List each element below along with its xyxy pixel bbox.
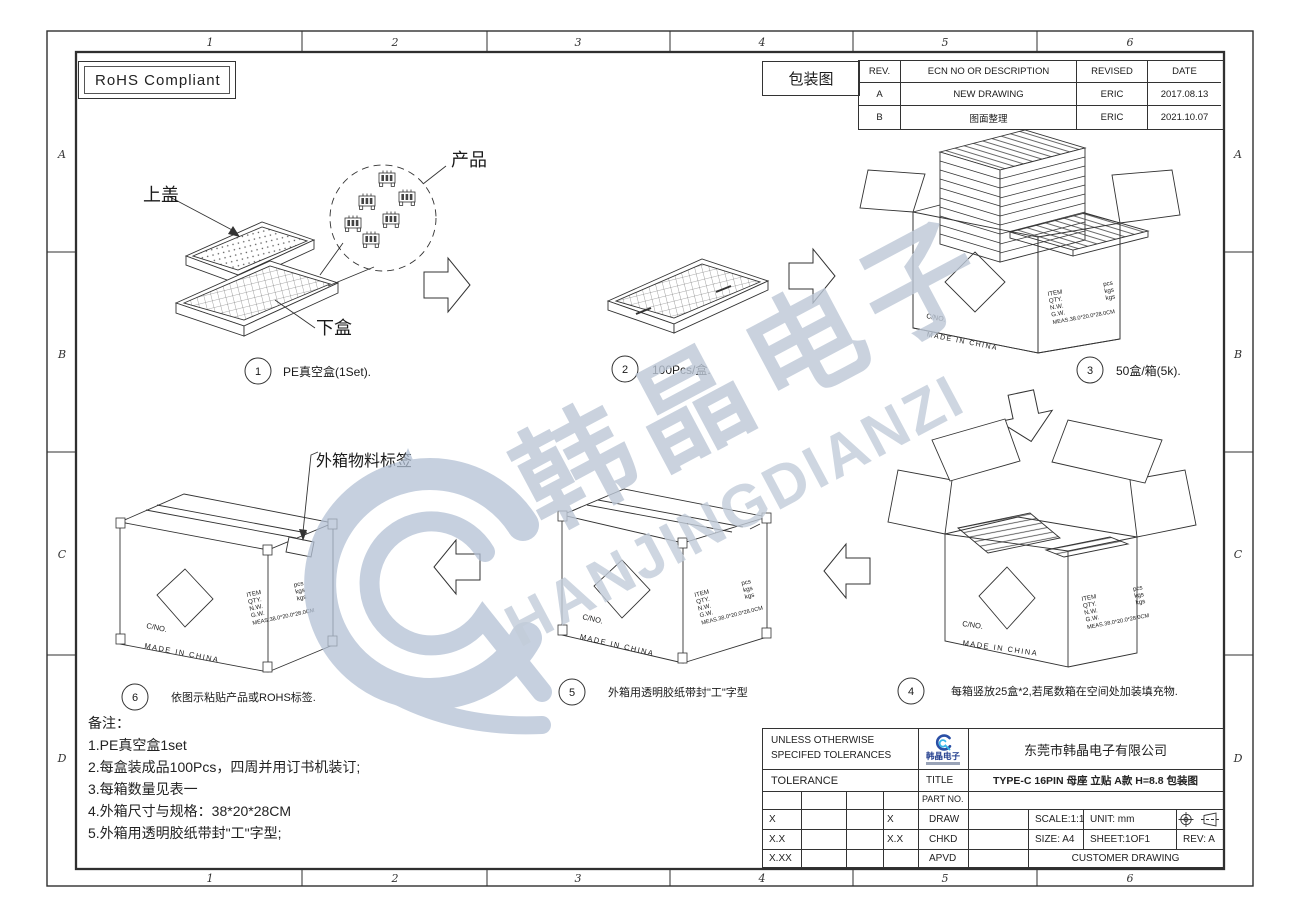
note-item: 3.每箱数量见表一 bbox=[88, 778, 448, 800]
notes-title: 备注： bbox=[88, 712, 448, 734]
package-diagram-label: 包装图 bbox=[762, 61, 860, 96]
rev-cell: B bbox=[859, 106, 901, 129]
tolerance-label: TOLERANCE bbox=[771, 775, 838, 787]
draw-label: DRAW bbox=[929, 814, 959, 825]
carton-material-label bbox=[286, 537, 314, 557]
zone-row: C bbox=[1234, 548, 1243, 561]
step-label: 每箱竖放25盒*2,若尾数箱在空间处加装填充物. bbox=[951, 684, 1178, 698]
callout-carton-label: 外箱物料标签 bbox=[316, 452, 412, 470]
zone-col: 1 bbox=[207, 36, 214, 49]
rohs-label: RoHS Compliant bbox=[84, 66, 230, 94]
logo-swirl-icon bbox=[932, 734, 954, 752]
size-value: SIZE: A4 bbox=[1035, 834, 1074, 845]
title-label: TITLE bbox=[926, 775, 953, 786]
step-label: 依图示粘贴产品或ROHS标签. bbox=[171, 690, 316, 704]
note-item: 2.每盒装成品100Pcs，四周并用订书机装订; bbox=[88, 756, 448, 778]
callout-bottom-box: 下盒 bbox=[316, 318, 352, 338]
made-in-text: MADE IN CHINA bbox=[579, 632, 655, 658]
chkd-label: CHKD bbox=[929, 834, 957, 845]
callout-top-cover: 上盖 bbox=[143, 185, 179, 205]
drawing-sheet: 1 2 3 4 5 6 1 2 3 4 5 6 A B C D A B C D bbox=[0, 0, 1300, 917]
title-block: UNLESS OTHERWISE SPECIFED TOLERANCES TOL… bbox=[762, 728, 1224, 868]
step2-tray bbox=[608, 259, 768, 333]
note-item: 5.外箱用透明胶纸带封"工"字型; bbox=[88, 822, 448, 844]
step-num: 2 bbox=[622, 364, 628, 376]
apvd-label: APVD bbox=[929, 853, 956, 864]
step1-trays bbox=[168, 165, 446, 336]
drawing-title: TYPE-C 16PIN 母座 立贴 A款 H=8.8 包装图 bbox=[968, 769, 1223, 791]
rohs-badge: RoHS Compliant bbox=[78, 61, 236, 99]
step-num: 6 bbox=[132, 692, 138, 704]
revised-header: REVISED bbox=[1077, 61, 1148, 83]
zone-row: A bbox=[1233, 148, 1242, 161]
tol-x: X bbox=[769, 814, 776, 825]
desc-cell: 图面整理 bbox=[901, 106, 1077, 129]
arrow-right-1 bbox=[424, 258, 470, 312]
step6-carton bbox=[116, 452, 337, 672]
step4-carton bbox=[888, 419, 1196, 667]
date-cell: 2017.08.13 bbox=[1148, 83, 1221, 106]
step6-markings: C/NO. MADE IN CHINA ITEM pcs QTY. kgs N.… bbox=[142, 579, 316, 665]
tol-xxx: X.XX bbox=[769, 853, 792, 864]
step-label: 100Pcs/盒. bbox=[652, 362, 711, 377]
revision-table: REV. ECN NO OR DESCRIPTION REVISED DATE … bbox=[858, 60, 1224, 130]
customer-drawing-label: CUSTOMER DRAWING bbox=[1028, 849, 1223, 867]
note-item: 4.外箱尺寸与规格：38*20*28CM bbox=[88, 800, 448, 822]
zone-row: D bbox=[57, 752, 67, 765]
zone-col: 5 bbox=[942, 872, 949, 885]
diamond-mark bbox=[979, 567, 1035, 629]
zone-col: 3 bbox=[575, 36, 582, 49]
step3-carton bbox=[860, 130, 1180, 353]
zone-col: 6 bbox=[1127, 36, 1134, 49]
zone-row: B bbox=[57, 348, 66, 361]
unit-value: UNIT: mm bbox=[1090, 814, 1134, 825]
rev-value: REV: A bbox=[1183, 834, 1215, 845]
diamond-mark bbox=[157, 569, 213, 627]
zone-row: C bbox=[58, 548, 67, 561]
part-no-label: PART NO. bbox=[922, 794, 964, 804]
zone-col: 2 bbox=[391, 36, 399, 49]
step-label: PE真空盒(1Set). bbox=[283, 364, 371, 379]
company-name: 东莞市韩晶电子有限公司 bbox=[968, 729, 1223, 769]
note-item: 1.PE真空盒1set bbox=[88, 734, 448, 756]
desc-cell: NEW DRAWING bbox=[901, 83, 1077, 106]
mark-value: kgs bbox=[744, 592, 755, 601]
tol-x: X bbox=[887, 814, 894, 825]
zone-col: 5 bbox=[942, 36, 949, 49]
product-icons bbox=[345, 171, 415, 248]
made-in-text: MADE IN CHINA bbox=[144, 641, 220, 664]
step-num: 4 bbox=[908, 686, 914, 698]
cno-text: C/NO. bbox=[962, 619, 984, 631]
zone-row: D bbox=[1233, 752, 1243, 765]
step-label: 外箱用透明胶纸带封"工"字型 bbox=[608, 685, 748, 699]
zone-row: B bbox=[1233, 348, 1242, 361]
mark-value: kgs bbox=[1135, 598, 1146, 607]
step5-markings: C/NO. MADE IN CHINA ITEM pcs QTY. kgs N.… bbox=[577, 577, 764, 658]
zone-col: 2 bbox=[391, 872, 399, 885]
date-cell: 2021.10.07 bbox=[1148, 106, 1221, 129]
step-label: 50盒/箱(5k). bbox=[1116, 363, 1181, 378]
zone-col: 1 bbox=[207, 872, 214, 885]
specified-tolerances: SPECIFED TOLERANCES bbox=[771, 750, 891, 761]
date-header: DATE bbox=[1148, 61, 1221, 83]
callout-product: 产品 bbox=[451, 150, 487, 170]
tol-xx: X.X bbox=[887, 834, 903, 845]
revised-cell: ERIC bbox=[1077, 106, 1148, 129]
rev-cell: A bbox=[859, 83, 901, 106]
logo-text: 韩晶电子 bbox=[926, 752, 960, 761]
desc-header: ECN NO OR DESCRIPTION bbox=[901, 61, 1077, 83]
revised-cell: ERIC bbox=[1077, 83, 1148, 106]
scale-value: SCALE:1:1 bbox=[1035, 814, 1084, 825]
zone-col: 4 bbox=[758, 36, 766, 49]
projection-symbol-icon bbox=[1178, 811, 1222, 828]
cno-text: C/NO. bbox=[146, 621, 168, 634]
step4-markings: C/NO. MADE IN CHINA ITEM pcs QTY. kgs N.… bbox=[959, 584, 1150, 658]
step-num: 1 bbox=[255, 366, 261, 378]
logo-subtext-bar bbox=[926, 762, 960, 765]
zone-col: 3 bbox=[575, 872, 582, 885]
step-num: 3 bbox=[1087, 365, 1093, 377]
made-in-text: MADE IN CHINA bbox=[962, 638, 1039, 658]
company-logo: 韩晶电子 bbox=[918, 729, 968, 769]
rev-header: REV. bbox=[859, 61, 901, 83]
cno-text: C/NO. bbox=[582, 612, 604, 625]
tol-xx: X.X bbox=[769, 834, 785, 845]
mark-value: kgs bbox=[296, 594, 307, 603]
notes-block: 备注： 1.PE真空盒1set 2.每盒装成品100Pcs，四周并用订书机装订;… bbox=[88, 712, 448, 844]
sheet-value: SHEET:1OF1 bbox=[1090, 834, 1150, 845]
arrow-left-1 bbox=[824, 544, 870, 598]
step-num: 5 bbox=[569, 687, 575, 699]
zone-col: 4 bbox=[758, 872, 766, 885]
arrow-left-2 bbox=[434, 540, 480, 594]
unless-otherwise: UNLESS OTHERWISE bbox=[771, 735, 874, 746]
zone-col: 6 bbox=[1127, 872, 1134, 885]
diamond-mark bbox=[594, 560, 650, 618]
arrow-right-2 bbox=[789, 249, 835, 303]
zone-row: A bbox=[57, 148, 66, 161]
